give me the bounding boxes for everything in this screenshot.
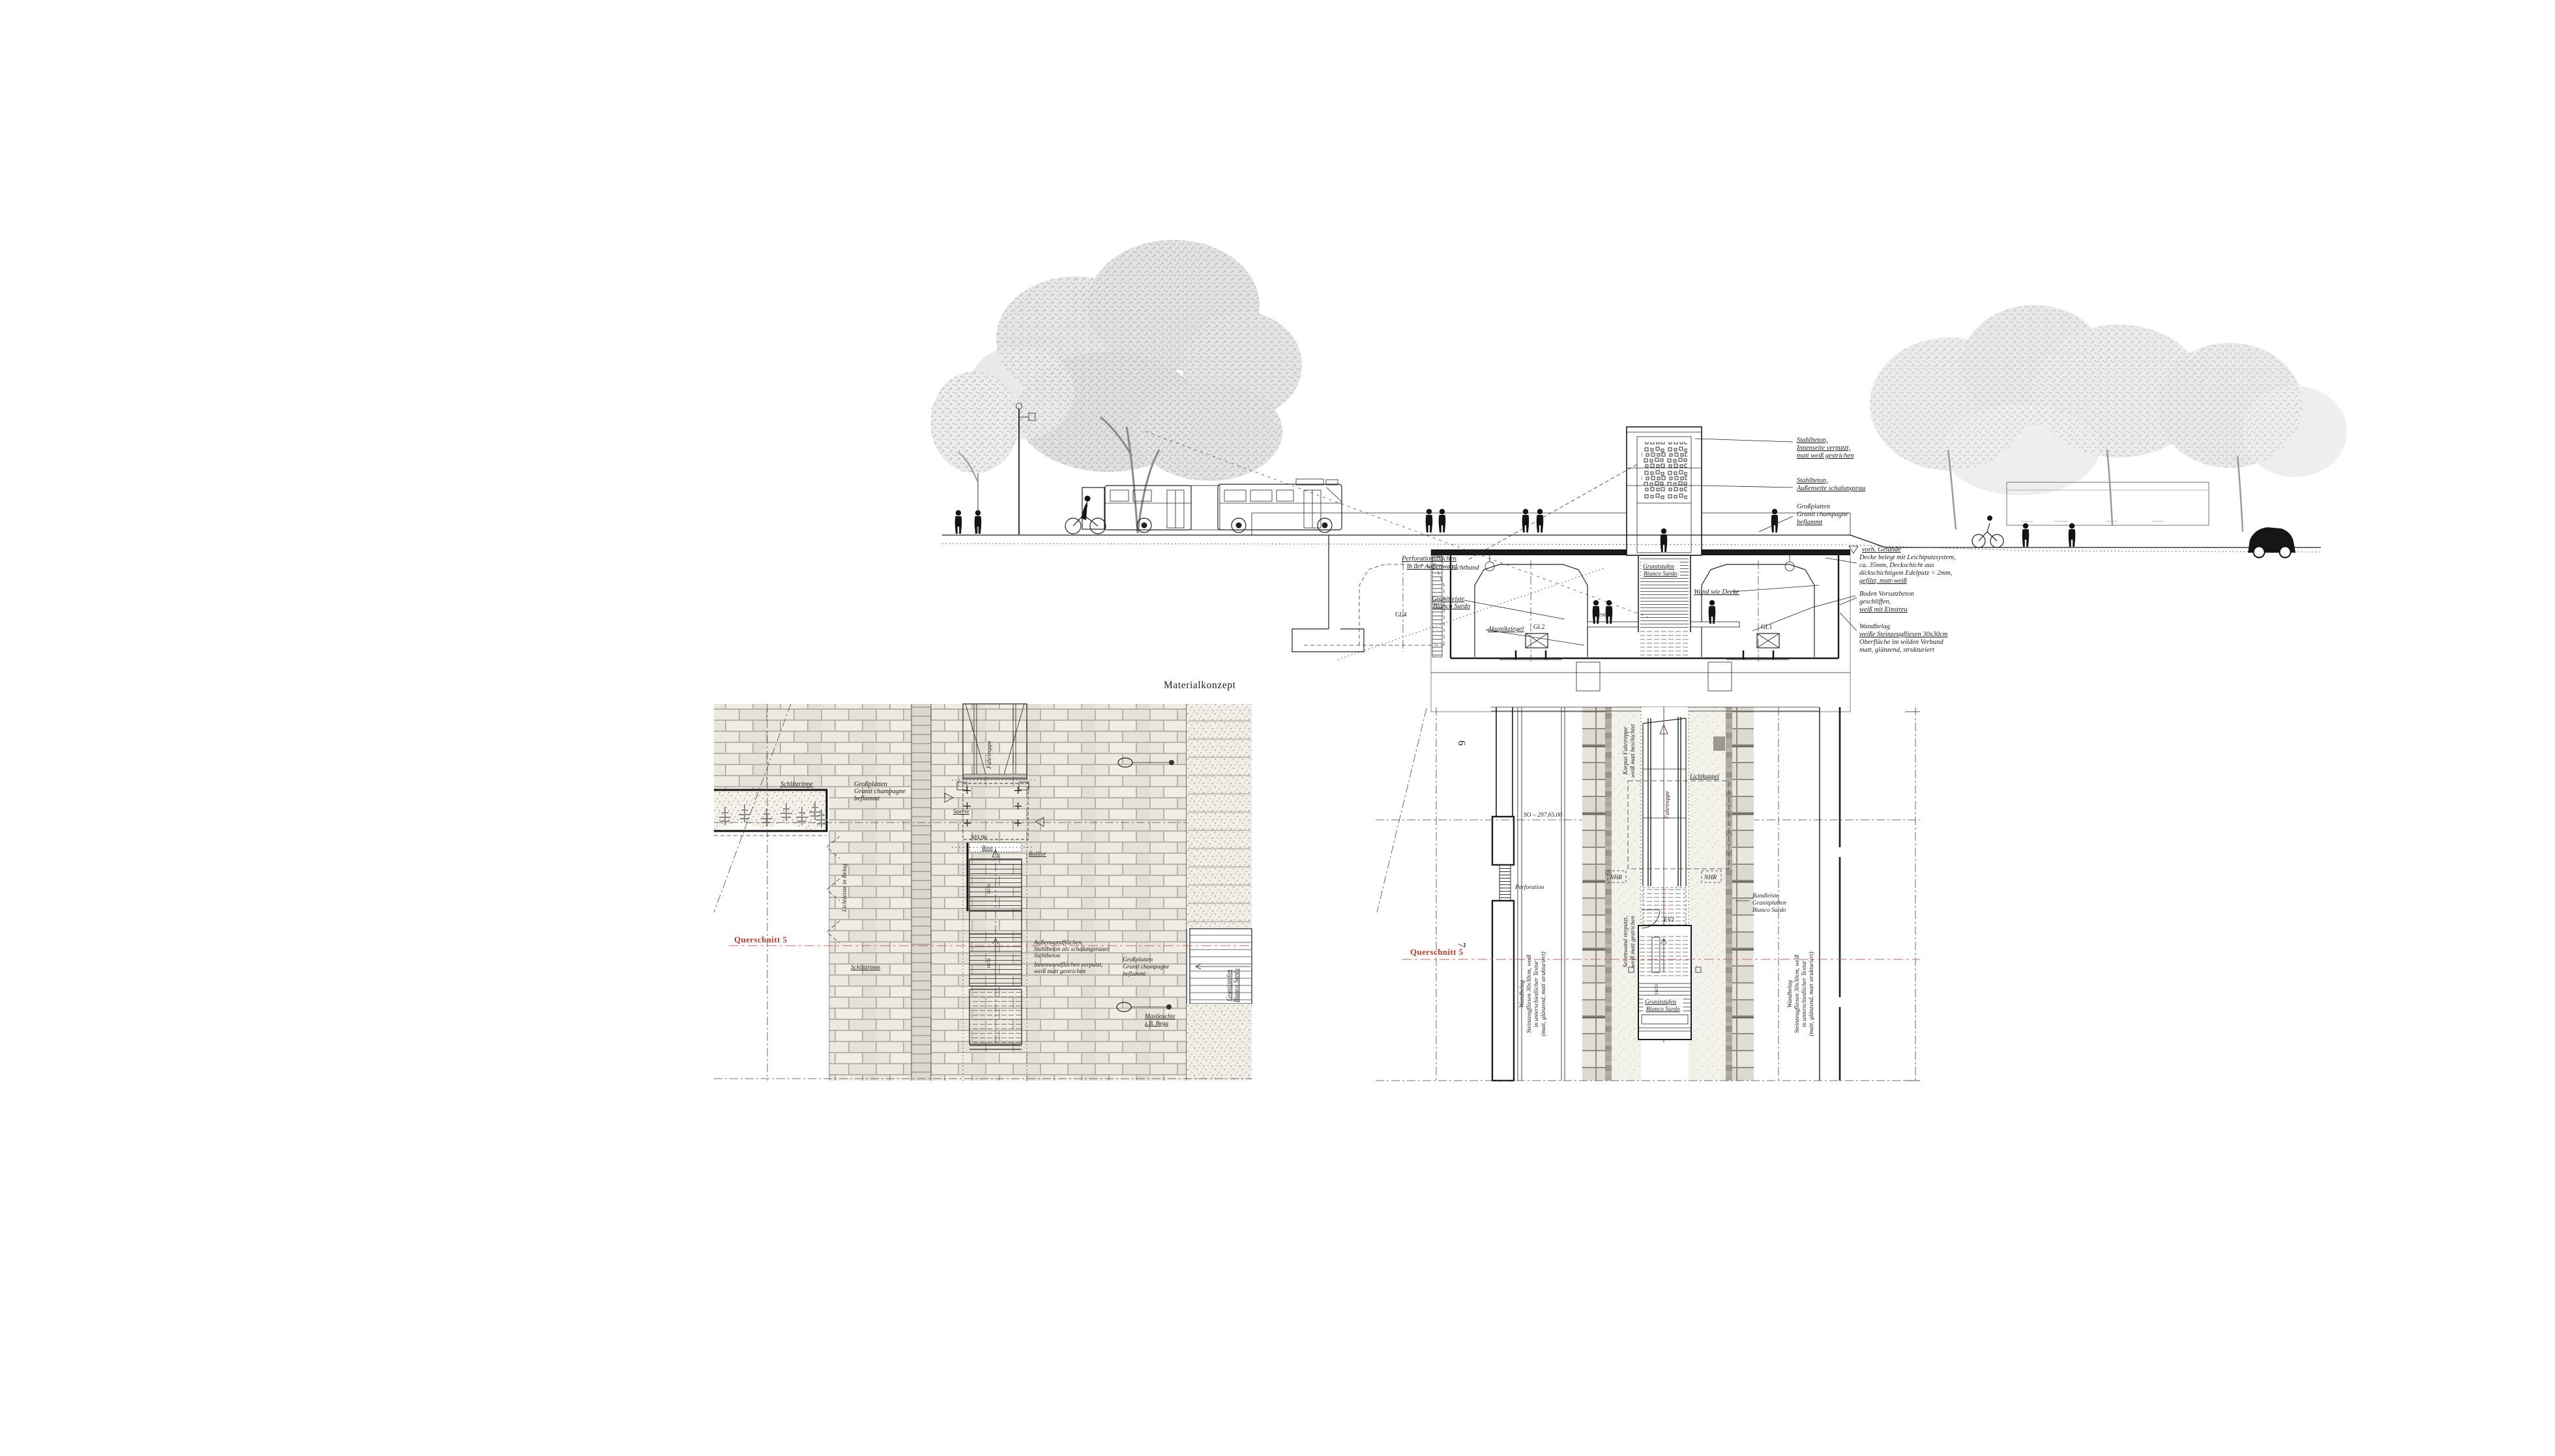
annotation: Granit champagne [1797,511,1848,518]
label-schlitzrinne: Schlitzrinne [851,965,880,971]
bus-bellows [1191,486,1220,530]
tree-group-right [1870,305,2347,532]
pedestrian [1426,509,1433,532]
label-grossplatten: Granit champagne [1123,964,1170,970]
pedestrian [2069,523,2076,547]
step-dimension: 16/31 [1654,984,1659,995]
label-mastleuchte: Mastleuchte [1144,1013,1175,1020]
grade-label: vorh. Gelände [1862,546,1901,553]
label-wand-wie-decke: Wand wie Decke [1694,589,1739,596]
label-innenwand: weiß matt gestrichen [1034,968,1086,975]
label-korpus: weiß matt beschichtet [1629,723,1636,778]
label-grossplatten: beflammt [1123,970,1146,978]
label-perforation: in der Außenwand [1407,563,1458,570]
annotation: beflammt [1797,519,1823,526]
elevator-tower [1627,427,1702,555]
label-perforation: Perforation [1514,884,1544,891]
drawing-sheet: { "title": "Materialkonzept", "colors": … [0,0,2555,1456]
annotation: Boden Vorsatzbeton [1859,590,1914,598]
stone-band-right [1732,707,1754,1081]
annotation: dickschichtigem Edelputz < 2mm, [1859,570,1952,577]
annotation: gefilzt, matt-weiß [1859,577,1908,585]
street-section: Stahlbeton, Innenseite verputzt, matt we… [930,240,2347,712]
stair-well [1629,910,1701,1040]
cyclist-left [1065,496,1106,534]
label-wandbelag: in unterschiedlicher Textur [1801,960,1808,1027]
label-grossplatten: Granit champagne [854,788,906,795]
label-randleiste: Bianco Sardo [1752,907,1786,914]
so-level-label: SO – 297,65.00 [1524,812,1562,819]
label-akustikziegel: Akustikziegel [1487,626,1524,633]
step-dimension: 16/31 [986,958,992,968]
tree-group-left [930,240,1302,533]
label-sperre: Sperre [953,809,969,815]
annotation: matt, glänzend, strukturiert [1859,647,1935,654]
annotation: weiße Steinzeugfliesen 30x30cm [1859,631,1948,638]
label-nhr: NHR [1704,875,1717,881]
label-innenwand: Innenwandflächen verputzt, [1033,961,1103,968]
label-korpus: Korpus Fahrtreppe [1623,727,1629,775]
label-lichtleiste: Lichtleiste in Belag [842,864,848,912]
annotation: Stahlbeton, [1797,477,1828,484]
duct [1713,736,1725,751]
annotation: weiß mit Einstreu [1859,606,1908,613]
plan-detail-left: Schlitzrinne Großplatten Granit champagn… [714,704,1252,1081]
sight-line [1377,708,1426,912]
pedestrian [1439,509,1446,532]
label-granitstufen: Granitstufen [1226,970,1233,1001]
track-label-gl4: Gl.4 [1395,611,1407,619]
annotation: Oberfläche im wilden Verband [1859,639,1943,646]
label-rost: Rost [981,845,993,852]
articulated-bus [1082,479,1342,532]
label-granitstufen: Granitstufen [1643,563,1674,570]
label-aussenwand: Stahlbeton als schalungsrauer [1034,946,1110,953]
annotation: Außenseite schalungsrau [1796,485,1865,492]
label-perforation: Perforationsflächen [1401,555,1456,562]
label-granitstufen: Bianco Sardo [1233,968,1240,1002]
label-wandbelag: Steinzeugfliesen 30x30cm, weiß [1526,954,1533,1033]
label-randleiste: Granitplatten [1752,900,1786,907]
annotation: Innenseite verputzt, [1796,444,1850,452]
pedestrian [1522,509,1529,532]
label-wandbelag: in unterschiedlicher Textur [1533,960,1540,1027]
tunnel-gl4 [1304,562,1444,652]
label-wandbelag: Steinzeugfliesen 30x30cm, weiß [1794,954,1801,1033]
retaining-wall [1292,535,1364,652]
pedestrian [1771,509,1779,532]
track-label-gl2: Gl.2 [1533,624,1545,631]
label-wandbelag: (matt, glänzend, matt strukturiert) [1808,952,1815,1036]
grout-strip-right [1726,707,1732,1081]
annotation: matt weiß gestrichen [1797,452,1854,459]
page-title: Materialkonzept [1164,680,1236,691]
wandbelag-block-right: Wandbelag Steinzeugfliesen 30x30cm, weiß… [1787,952,1815,1036]
annotation: Wandbelag [1859,623,1890,630]
drainage-channel [911,704,931,1081]
label-schlitzrinne: Schlitzrinne [780,781,814,788]
label-granitstufen: Bianco Sardo [1644,571,1677,577]
elevation-value: 303,96 [969,835,987,841]
label-fahrtreppe: Fahrtreppe [1664,791,1671,820]
architectural-sheet-svg: Stahlbeton, Innenseite verputzt, matt we… [0,0,2555,1456]
label-lichtkuppel: Lichtkuppel [1689,774,1719,780]
perforation-hatch [1499,865,1511,901]
grid-axis-6: 6 [1456,740,1467,746]
annotation: Decke belegt mit Leichtputzsystem, [1859,554,1956,561]
label-ev1: EV1 [1663,917,1674,924]
stone-band-left [1582,707,1605,1081]
label-mastleuchte: z.B. Bega [1144,1021,1168,1027]
label-grossplatten: beflammt [854,795,880,802]
platform-slab-right [1691,622,1739,627]
label-nhr: NHR [1609,875,1622,881]
pedestrian [955,510,962,534]
label-granitstufen: Granitstufen [1645,998,1676,1006]
label-wandbelag: Wandbelag [1519,980,1526,1008]
label-wandbelag: (matt, glänzend, matt strukturiert) [1540,952,1547,1036]
pedestrian [2022,523,2030,547]
label-granitstufen: Bianco Sardo [1646,1006,1680,1013]
step-dimension: 16/31 [986,884,992,894]
label-granitleiste: Granitleiste [1432,596,1465,603]
planting-bed [714,790,827,836]
cyclist-right [1972,516,2003,547]
annotation: Großplatten [1797,503,1830,510]
track-label-gl1: Gl.1 [1761,624,1773,631]
label-aussenwand: Außenwandflächen [1033,939,1082,946]
label-grossplatten: Großplatten [1123,956,1153,963]
label-aussenwand: Sichtbeton [1034,953,1060,959]
label-grossplatten: Großplatten [854,781,887,788]
label-lichtband: Lichtband [1451,564,1479,572]
pedestrian [1537,509,1544,532]
label-seitenwand: Seitenwand verputzt, [1623,916,1629,967]
annotation: geschliffen, [1859,598,1891,605]
label-wandbelag: Wandbelag [1787,980,1794,1008]
section-cut-label: Querschnitt 5 [1410,947,1463,957]
label-rolltor: Rolltor [1028,851,1046,858]
annotation: Stahlbeton, [1797,437,1828,444]
label-seitenwand: weiß matt gestrichen [1629,916,1636,967]
section-cut-label: Querschnitt 5 [734,935,787,944]
right-slope-and-stair [1187,704,1252,1081]
platform-elevation: 298.65 [1599,613,1612,618]
label-randleiste: Randleiste [1752,893,1779,899]
car [2248,527,2296,558]
label-fahrtreppe: Fahrtreppe [986,741,993,770]
perforated-panel [1642,442,1687,499]
wandbelag-block-left: Wandbelag Steinzeugfliesen 30x30cm, weiß… [1519,952,1547,1036]
plan-detail-right: 6 7 [1376,707,1920,1081]
label-granitleiste: Bianco Sardo [1433,603,1470,610]
annotation: ca. 35mm, Deckschicht aus [1859,562,1934,569]
grout-strip-left [1605,707,1612,1081]
